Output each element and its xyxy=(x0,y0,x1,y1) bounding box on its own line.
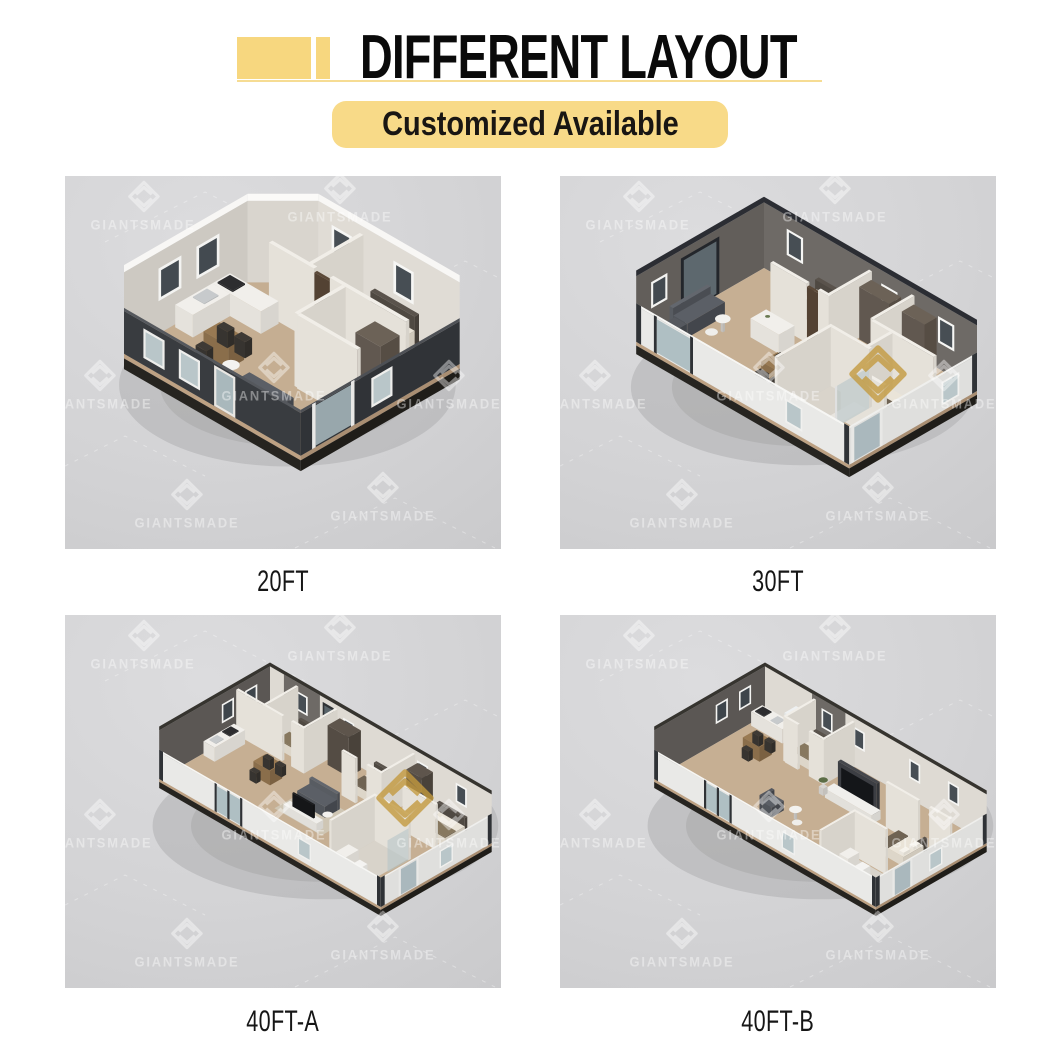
layout-grid: GIANTSMADEGIANTSMADEGIANTSMADEGIANTSMADE… xyxy=(65,176,995,1056)
floorplan-isometric-svg xyxy=(65,176,501,549)
title-accent-block xyxy=(237,37,311,79)
title-accent-bar xyxy=(316,37,330,79)
layout-cell-30ft: GIANTSMADEGIANTSMADEGIANTSMADEGIANTSMADE… xyxy=(560,176,996,615)
customized-badge: Customized Available xyxy=(332,101,729,148)
floorplan-render-40ft-a xyxy=(65,615,501,988)
promo-page: DIFFERENT LAYOUT Customized Available GI… xyxy=(0,0,1060,1050)
title-row: DIFFERENT LAYOUT xyxy=(237,37,822,79)
floorplan-caption-40ft-a: 40FT-A xyxy=(65,988,501,1056)
layout-cell-20ft: GIANTSMADEGIANTSMADEGIANTSMADEGIANTSMADE… xyxy=(65,176,501,615)
customized-badge-label: Customized Available xyxy=(382,105,679,144)
floorplan-render-40ft-b xyxy=(560,615,996,988)
floorplan-panel-30ft: GIANTSMADEGIANTSMADEGIANTSMADEGIANTSMADE… xyxy=(560,176,996,549)
floorplan-isometric-svg xyxy=(560,176,996,549)
floorplan-isometric-svg xyxy=(560,615,996,988)
floorplan-render-30ft xyxy=(560,176,996,549)
layout-cell-40ft-b: GIANTSMADEGIANTSMADEGIANTSMADEGIANTSMADE… xyxy=(560,615,996,1056)
floorplan-panel-40ft-b: GIANTSMADEGIANTSMADEGIANTSMADEGIANTSMADE… xyxy=(560,615,996,988)
floorplan-label-30ft: 30FT xyxy=(752,565,804,599)
floorplan-caption-20ft: 20FT xyxy=(65,549,501,615)
floorplan-label-40ft-a: 40FT-A xyxy=(247,1005,320,1039)
floorplan-caption-40ft-b: 40FT-B xyxy=(560,988,996,1056)
layout-cell-40ft-a: GIANTSMADEGIANTSMADEGIANTSMADEGIANTSMADE… xyxy=(65,615,501,1056)
floorplan-isometric-svg xyxy=(65,615,501,988)
title-underline xyxy=(237,80,822,82)
header: DIFFERENT LAYOUT Customized Available xyxy=(0,0,1060,148)
floorplan-render-20ft xyxy=(65,176,501,549)
floorplan-label-40ft-b: 40FT-B xyxy=(742,1005,815,1039)
floorplan-panel-20ft: GIANTSMADEGIANTSMADEGIANTSMADEGIANTSMADE… xyxy=(65,176,501,549)
page-title: DIFFERENT LAYOUT xyxy=(360,37,797,79)
floorplan-panel-40ft-a: GIANTSMADEGIANTSMADEGIANTSMADEGIANTSMADE… xyxy=(65,615,501,988)
floorplan-label-20ft: 20FT xyxy=(257,565,309,599)
floorplan-caption-30ft: 30FT xyxy=(560,549,996,615)
